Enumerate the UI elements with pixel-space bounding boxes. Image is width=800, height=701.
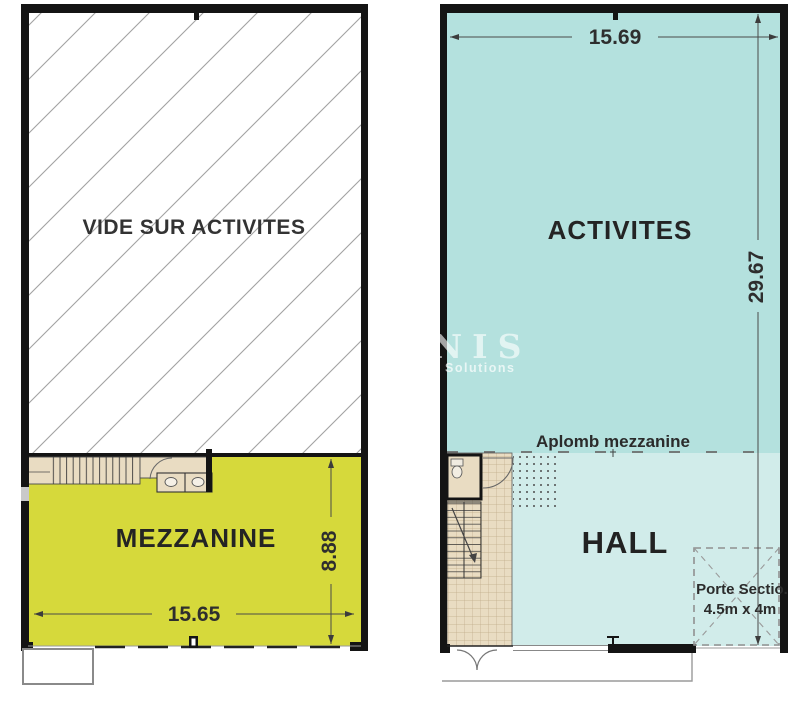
mezzanine-height-label: 8.88 bbox=[318, 530, 341, 571]
floor-plan-canvas: VIDE SUR ACTIVITES MEZZANINE 15.65 8.88 bbox=[0, 0, 800, 701]
activites-width-label: 15.69 bbox=[589, 26, 642, 49]
mezzanine-label: MEZZANINE bbox=[116, 523, 277, 553]
toilet-icon bbox=[192, 478, 204, 487]
toilet-icon bbox=[452, 466, 462, 478]
void-label: VIDE SUR ACTIVITES bbox=[83, 216, 306, 239]
wc-room-icon bbox=[447, 455, 481, 499]
staircase-icon bbox=[28, 457, 140, 484]
mezzanine-width-label: 15.65 bbox=[168, 603, 221, 626]
exterior-platform bbox=[23, 649, 93, 684]
ground-level-plan: ACTIVITES Aplomb mezzanine HALL Porte Se… bbox=[432, 4, 788, 681]
hall-label: HALL bbox=[582, 525, 669, 560]
wall-opening bbox=[21, 487, 29, 501]
window-band bbox=[513, 646, 608, 651]
activites-label: ACTIVITES bbox=[548, 215, 693, 245]
sectional-door-size-label: 4.5m x 4m bbox=[704, 601, 777, 618]
watermark-subtext: Solutions bbox=[445, 361, 515, 375]
sectional-door-label: Porte Sectio. bbox=[696, 581, 788, 598]
dotted-zone bbox=[513, 455, 559, 509]
aplomb-label: Aplomb mezzanine bbox=[536, 432, 690, 451]
floor-plan-page: VIDE SUR ACTIVITES MEZZANINE 15.65 8.88 bbox=[0, 0, 800, 701]
exterior-ramp-line bbox=[442, 653, 692, 681]
toilet-icon bbox=[165, 478, 177, 487]
staircase-icon bbox=[447, 502, 481, 578]
mezzanine-level-plan: VIDE SUR ACTIVITES MEZZANINE 15.65 8.88 bbox=[21, 4, 368, 684]
double-door-icon bbox=[457, 650, 497, 670]
activites-height-label: 29.67 bbox=[745, 251, 768, 304]
mezzanine-edge-wall bbox=[28, 453, 361, 457]
